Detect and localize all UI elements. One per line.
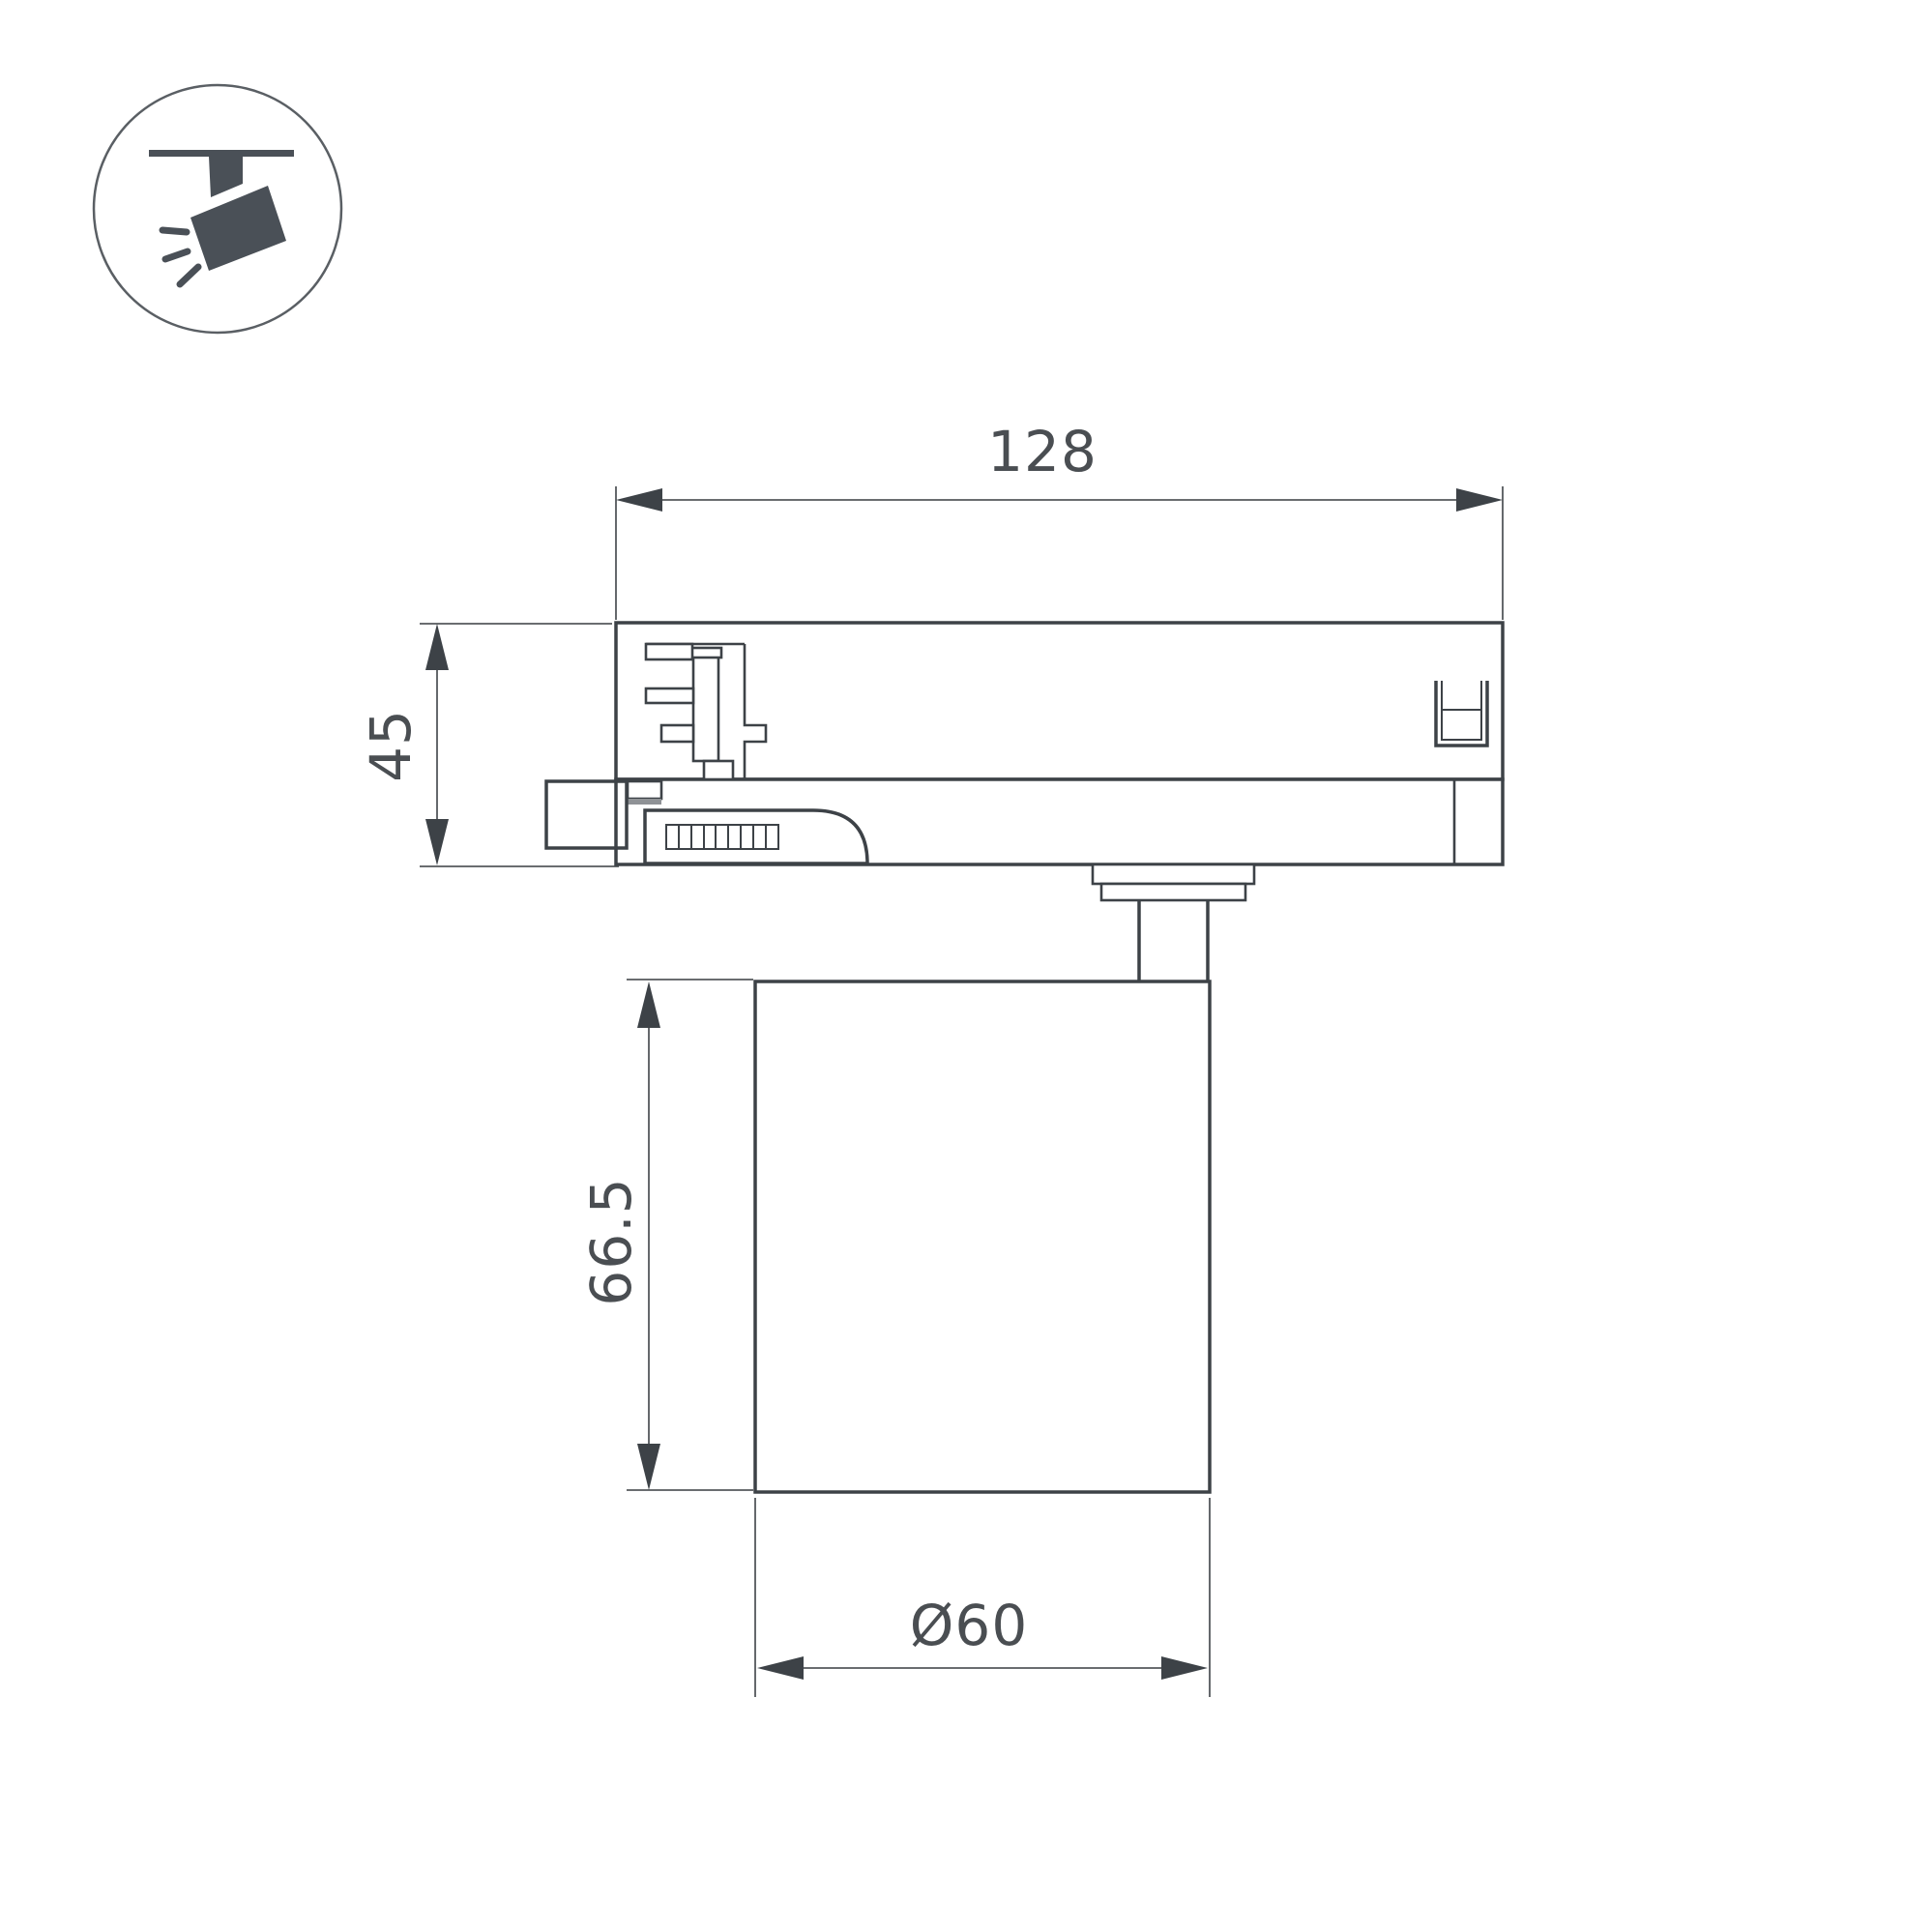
swivel-joint xyxy=(1093,864,1254,981)
contact-prong-middle xyxy=(646,688,693,703)
dim-128-arrow-left xyxy=(616,488,662,512)
dim-66-label: 66.5 xyxy=(578,1177,644,1305)
icon-track-bar xyxy=(149,150,294,157)
track-spotlight-icon xyxy=(94,85,341,333)
dimension-d60: Ø60 xyxy=(755,1498,1210,1697)
dim-66-arrow-down xyxy=(637,1444,660,1490)
track-adapter xyxy=(546,623,1503,981)
drawing-svg: 128 45 xyxy=(0,0,1932,1932)
contact-center-pin xyxy=(693,657,718,761)
lamp-body xyxy=(755,981,1210,1492)
dim-66-arrow-up xyxy=(637,981,660,1028)
clip-block xyxy=(628,781,661,799)
dim-128-label: 128 xyxy=(987,419,1098,484)
dimension-45: 45 xyxy=(358,624,619,866)
dim-45-arrow-down xyxy=(425,819,449,865)
dim-45-label: 45 xyxy=(358,709,424,782)
dimension-66-5: 66.5 xyxy=(578,980,753,1490)
adapter-upper-body xyxy=(616,623,1503,779)
dim-60-arrow-right xyxy=(1161,1656,1208,1680)
dim-60-arrow-left xyxy=(757,1656,804,1680)
flange-lower-tier xyxy=(1101,884,1245,900)
technical-drawing-page: 128 45 xyxy=(0,0,1932,1932)
locking-lever xyxy=(645,810,867,864)
dimension-128: 128 xyxy=(616,419,1503,620)
contact-prong-bottom xyxy=(661,725,693,742)
dim-128-arrow-right xyxy=(1456,488,1503,512)
contact-prong-top xyxy=(646,644,692,659)
contact-foot xyxy=(704,761,733,779)
contact-pin-cap xyxy=(690,648,721,658)
dim-60-label: Ø60 xyxy=(910,1593,1028,1658)
dim-45-arrow-up xyxy=(425,624,449,670)
icon-light-ray-1 xyxy=(162,230,187,232)
clip-gray-strip xyxy=(628,799,661,805)
flange-upper-tier xyxy=(1093,864,1254,884)
